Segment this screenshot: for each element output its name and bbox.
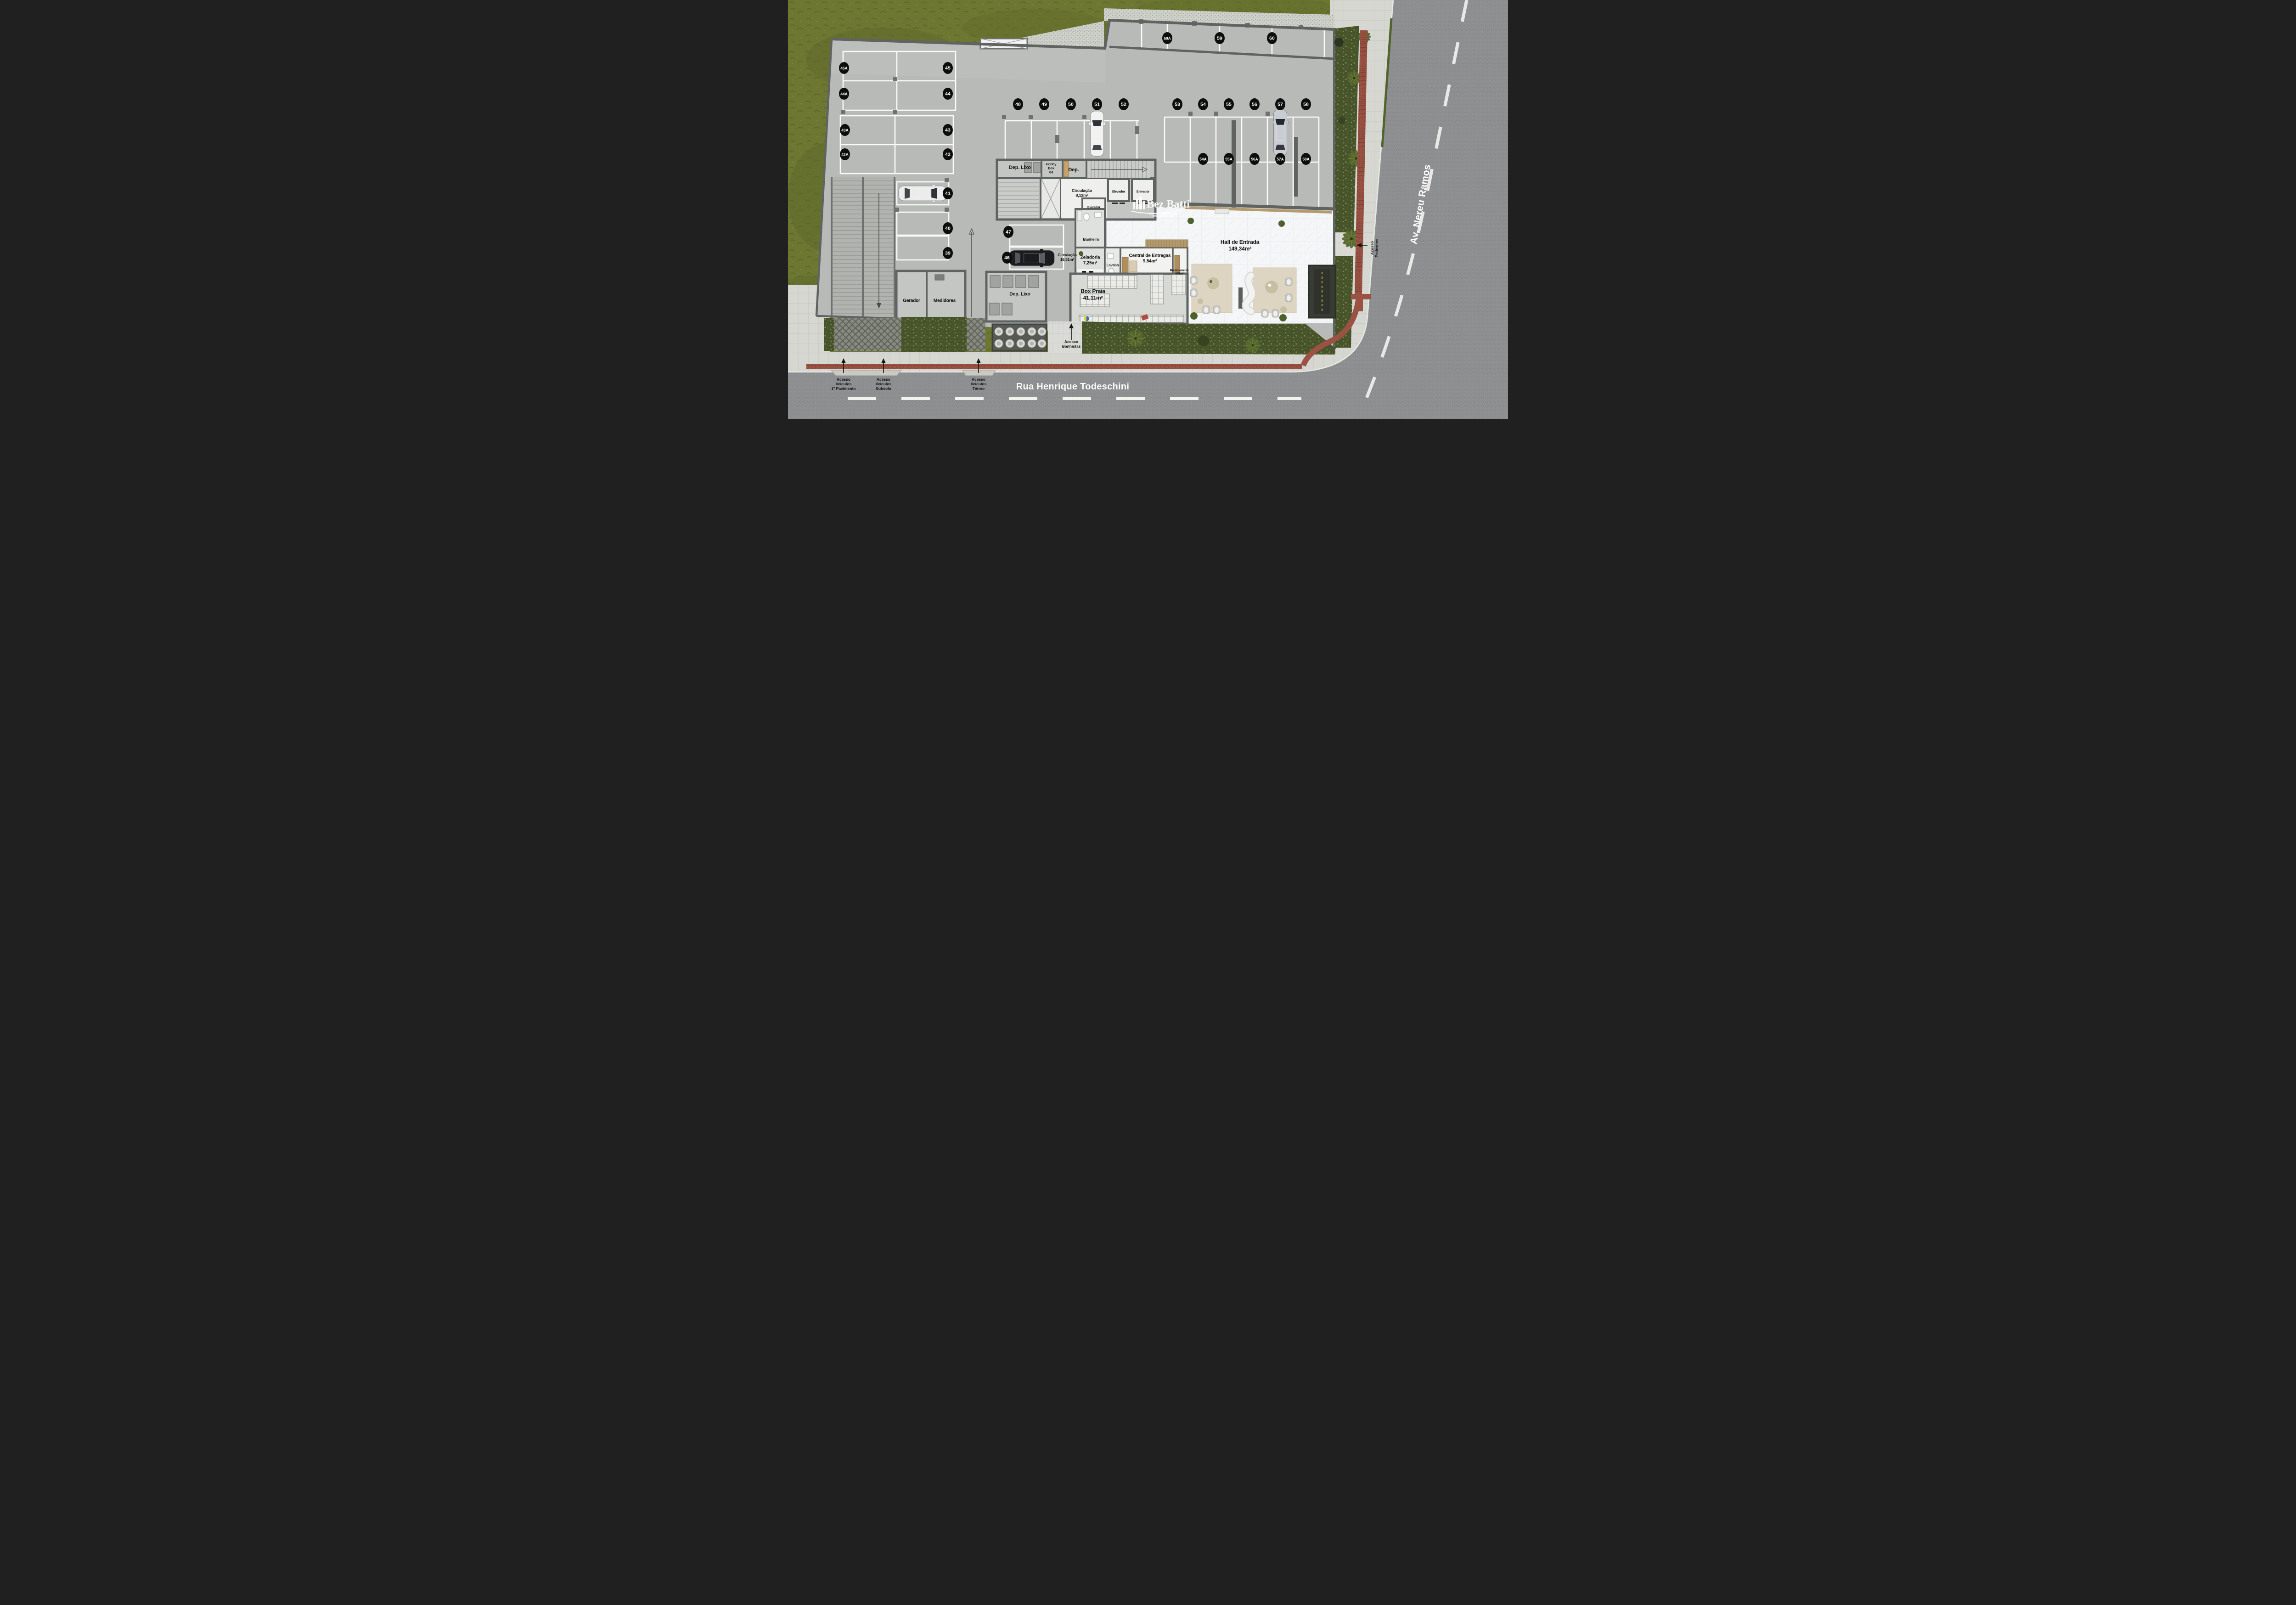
svg-text:39: 39 (945, 251, 951, 256)
room-label-dep-lixo-upper: Dep. Lixo (1009, 165, 1031, 170)
car-spot-46 (1009, 249, 1054, 267)
svg-text:55: 55 (1226, 102, 1232, 107)
vehicle-ramp (832, 177, 895, 319)
svg-text:49: 49 (1041, 102, 1047, 107)
parking-badge-58A: 58A (1301, 153, 1311, 165)
parking-badge-46: 46 (1002, 252, 1012, 264)
svg-text:54A: 54A (1199, 157, 1207, 162)
svg-text:40: 40 (945, 226, 951, 231)
parking-badge-60: 60 (1267, 32, 1277, 44)
room-label-medidores: Medidores (934, 298, 956, 304)
parking-badge-53: 53 (1172, 98, 1182, 110)
street-name-bottom: Rua Henrique Todeschini (1016, 382, 1130, 392)
parking-badge-43A: 43A (840, 124, 850, 136)
svg-text:48: 48 (1015, 102, 1021, 107)
exhaust-fans (992, 324, 1047, 351)
svg-text:57: 57 (1277, 102, 1283, 107)
parking-badge-44: 44 (943, 88, 953, 100)
parking-badge-59: 59 (1215, 32, 1225, 44)
svg-text:60: 60 (1269, 36, 1275, 41)
room-label-gerador: Gerador (903, 298, 920, 304)
parking-badge-52: 52 (1119, 98, 1129, 110)
access-label-veiculos-terreo: AcessoVeículosTérreo (971, 377, 987, 391)
parking-badge-45A: 45A (839, 62, 849, 74)
room-label-banheiro: Banheiro (1083, 237, 1099, 242)
svg-text:53: 53 (1175, 102, 1180, 107)
svg-text:45A: 45A (840, 66, 848, 71)
site-plan: Bez Batti Rua Henrique Todeschini Av. Ne… (788, 0, 1508, 419)
svg-text:54: 54 (1200, 102, 1206, 107)
parking-badge-49: 49 (1039, 98, 1049, 110)
car-spot-41 (899, 185, 946, 202)
parking-badge-47: 47 (1003, 226, 1013, 238)
parking-badge-44A: 44A (839, 88, 849, 100)
stairs-left (998, 179, 1039, 218)
parking-badge-58: 58 (1301, 98, 1311, 110)
room-label-elevador-b: Elevador (1112, 190, 1125, 193)
parking-badge-48: 48 (1013, 98, 1023, 110)
parking-badge-40: 40 (943, 222, 953, 234)
parking-badge-57A: 57A (1275, 153, 1285, 165)
parking-badge-39: 39 (943, 247, 953, 259)
svg-text:47: 47 (1006, 230, 1011, 235)
svg-text:43A: 43A (841, 128, 849, 133)
parking-badge-51: 51 (1092, 98, 1102, 110)
car-spot-57 (1272, 110, 1289, 156)
room-label-dep: Dep. (1068, 167, 1079, 173)
svg-text:57A: 57A (1277, 157, 1284, 162)
parking-badge-54: 54 (1198, 98, 1208, 110)
parking-badge-59A: 59A (1162, 32, 1172, 44)
garden-hedge (1082, 321, 1335, 355)
svg-text:46: 46 (1004, 255, 1010, 261)
parking-badge-57: 57 (1275, 98, 1285, 110)
car-spot-51 (1089, 111, 1105, 156)
wood-slat-bench (1146, 240, 1188, 247)
logo-text: Bez Batti (1147, 198, 1190, 210)
room-label-elevador-c: Elevador (1137, 190, 1149, 193)
floor-plan-stage: Bez Batti Rua Henrique Todeschini Av. Ne… (788, 0, 1508, 419)
access-label-banhistas: AcessoBanhistas (1062, 339, 1081, 349)
svg-text:59: 59 (1217, 36, 1222, 41)
parking-badge-42: 42 (943, 148, 953, 160)
svg-text:45: 45 (945, 66, 951, 71)
room-label-elevador-a: Elevador (1087, 206, 1100, 209)
parking-badge-41: 41 (943, 187, 953, 199)
parking-badge-56: 56 (1249, 98, 1260, 110)
svg-text:42A: 42A (841, 152, 849, 157)
svg-text:59A: 59A (1164, 36, 1171, 41)
svg-text:41: 41 (945, 191, 951, 197)
svg-text:55A: 55A (1225, 157, 1232, 162)
parking-badge-56A: 56A (1249, 153, 1260, 165)
water-feature (1309, 265, 1335, 318)
svg-text:52: 52 (1121, 102, 1126, 107)
lane-dashes-bottom (848, 397, 1301, 400)
parking-badge-43: 43 (943, 124, 953, 136)
parking-badge-42A: 42A (840, 148, 850, 160)
svg-text:43: 43 (945, 128, 951, 133)
room-label-dep-lixo-lower: Dep. Lixo (1009, 292, 1030, 297)
access-label-pedestres: AcessoPedestres (1370, 238, 1379, 257)
stairs-top (1087, 161, 1150, 178)
room-label-circulacao-16: Circulação16,51m² (1058, 253, 1076, 262)
svg-text:56: 56 (1252, 102, 1257, 107)
svg-text:58: 58 (1303, 102, 1309, 107)
room-label-lavabo: Lavabo (1107, 263, 1119, 267)
svg-text:50: 50 (1068, 102, 1074, 107)
svg-text:44A: 44A (840, 92, 848, 96)
svg-text:51: 51 (1094, 102, 1100, 107)
parking-badge-55A: 55A (1224, 153, 1234, 165)
access-label-veiculos-subsolo: AcessoVeículosSubsolo (876, 377, 892, 391)
parking-badge-45: 45 (943, 62, 953, 74)
parking-badge-54A: 54A (1198, 153, 1208, 165)
svg-text:58A: 58A (1302, 157, 1310, 162)
svg-text:44: 44 (945, 91, 951, 97)
svg-text:42: 42 (945, 152, 951, 158)
svg-text:56A: 56A (1251, 157, 1258, 162)
parking-badge-55: 55 (1224, 98, 1234, 110)
parking-badge-50: 50 (1066, 98, 1076, 110)
room-label-box-praia: Box Praia41,11m² (1080, 288, 1105, 301)
